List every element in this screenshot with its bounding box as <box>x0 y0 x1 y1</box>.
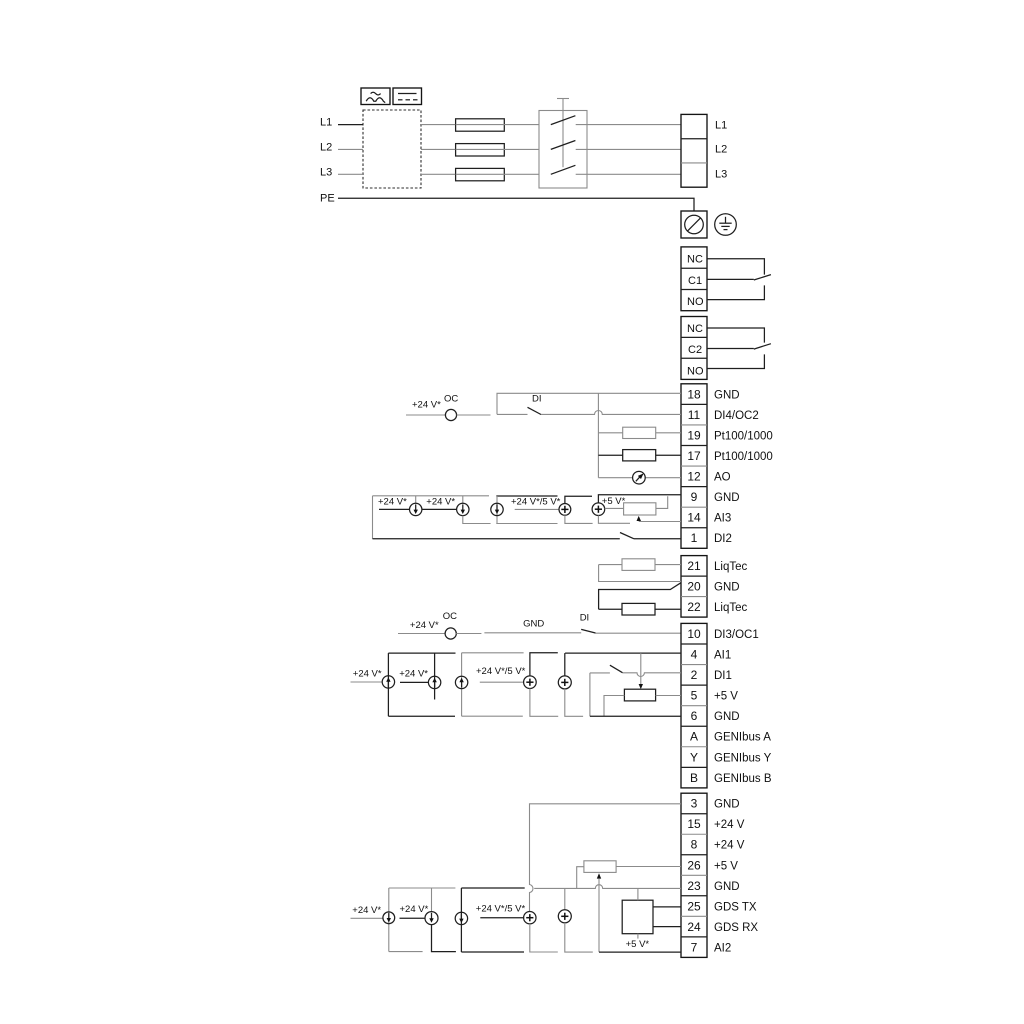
svg-text:9: 9 <box>691 490 698 504</box>
svg-text:Pt100/1000: Pt100/1000 <box>714 430 773 442</box>
svg-text:+5 V: +5 V <box>714 860 738 872</box>
svg-text:DI2: DI2 <box>714 533 732 545</box>
svg-text:PE: PE <box>320 193 335 205</box>
svg-text:GND: GND <box>714 881 740 893</box>
svg-text:GND: GND <box>523 618 544 629</box>
svg-text:GDS TX: GDS TX <box>714 901 757 913</box>
svg-text:GENIbus A: GENIbus A <box>714 732 771 744</box>
svg-text:+24 V*: +24 V* <box>410 620 439 631</box>
svg-text:GENIbus Y: GENIbus Y <box>714 752 772 764</box>
svg-text:18: 18 <box>687 387 701 401</box>
svg-text:L1: L1 <box>320 117 332 129</box>
svg-text:GND: GND <box>714 711 740 723</box>
svg-text:5: 5 <box>691 689 698 703</box>
svg-text:+24 V*: +24 V* <box>400 904 429 915</box>
svg-text:7: 7 <box>691 940 698 954</box>
svg-text:LiqTec: LiqTec <box>714 602 747 614</box>
svg-text:GND: GND <box>714 389 740 401</box>
svg-text:+24 V*: +24 V* <box>378 497 407 508</box>
svg-text:14: 14 <box>687 511 701 525</box>
svg-text:+5 V*: +5 V* <box>602 496 626 507</box>
svg-text:+24 V*: +24 V* <box>412 400 441 411</box>
svg-text:A: A <box>690 730 698 744</box>
svg-text:Pt100/1000: Pt100/1000 <box>714 451 773 463</box>
svg-text:23: 23 <box>687 879 701 893</box>
svg-text:L2: L2 <box>320 142 332 154</box>
svg-text:GND: GND <box>714 492 740 504</box>
svg-text:OC: OC <box>444 394 458 405</box>
svg-text:DI3/OC1: DI3/OC1 <box>714 629 759 641</box>
svg-text:C2: C2 <box>688 344 702 356</box>
svg-text:26: 26 <box>687 858 701 872</box>
svg-text:+24 V: +24 V <box>714 840 745 852</box>
svg-text:GND: GND <box>714 799 740 811</box>
svg-text:NO: NO <box>687 365 704 377</box>
svg-text:AI3: AI3 <box>714 513 731 525</box>
svg-text:L2: L2 <box>715 144 727 156</box>
svg-text:DI1: DI1 <box>714 670 732 682</box>
svg-text:10: 10 <box>687 627 701 641</box>
svg-text:GDS RX: GDS RX <box>714 922 758 934</box>
svg-text:+24 V*: +24 V* <box>353 668 382 679</box>
svg-text:AO: AO <box>714 472 731 484</box>
svg-text:24: 24 <box>687 920 701 934</box>
svg-text:+24 V*/5 V*: +24 V*/5 V* <box>476 904 526 915</box>
svg-text:20: 20 <box>687 580 701 594</box>
svg-text:OC: OC <box>443 611 457 622</box>
svg-text:L3: L3 <box>715 169 727 181</box>
svg-text:17: 17 <box>687 449 701 463</box>
svg-text:DI: DI <box>580 612 590 623</box>
svg-text:NO: NO <box>687 296 704 308</box>
svg-text:C1: C1 <box>688 275 702 287</box>
svg-text:12: 12 <box>687 470 701 484</box>
svg-text:L1: L1 <box>715 120 727 132</box>
svg-text:+24 V*: +24 V* <box>426 497 455 508</box>
svg-text:+24 V*/5 V*: +24 V*/5 V* <box>476 666 526 677</box>
svg-text:DI: DI <box>532 394 542 405</box>
svg-text:AI2: AI2 <box>714 942 731 954</box>
svg-text:DI4/OC2: DI4/OC2 <box>714 410 759 422</box>
svg-text:+24 V*: +24 V* <box>399 668 428 679</box>
svg-text:L3: L3 <box>320 167 332 179</box>
svg-text:+24 V: +24 V <box>714 819 745 831</box>
svg-text:+5 V: +5 V <box>714 691 738 703</box>
svg-text:NC: NC <box>687 254 703 266</box>
svg-text:2: 2 <box>691 668 698 682</box>
svg-text:25: 25 <box>687 899 701 913</box>
svg-text:Y: Y <box>690 750 698 764</box>
svg-text:GND: GND <box>714 582 740 594</box>
svg-text:+24 V*/5 V*: +24 V*/5 V* <box>511 497 561 508</box>
svg-text:15: 15 <box>687 817 701 831</box>
svg-text:6: 6 <box>691 709 698 723</box>
svg-text:+24 V*: +24 V* <box>352 905 381 916</box>
svg-text:8: 8 <box>691 838 698 852</box>
svg-text:4: 4 <box>691 647 698 661</box>
svg-text:GENIbus B: GENIbus B <box>714 773 772 785</box>
svg-text:3: 3 <box>691 797 698 811</box>
svg-text:NC: NC <box>687 323 703 335</box>
svg-text:B: B <box>690 771 698 785</box>
svg-text:21: 21 <box>687 559 701 573</box>
svg-text:11: 11 <box>688 408 701 422</box>
svg-text:+5 V*: +5 V* <box>626 939 650 950</box>
svg-text:19: 19 <box>687 428 701 442</box>
svg-text:1: 1 <box>691 531 698 545</box>
svg-text:LiqTec: LiqTec <box>714 561 747 573</box>
svg-text:22: 22 <box>687 600 701 614</box>
svg-text:AI1: AI1 <box>714 649 731 661</box>
